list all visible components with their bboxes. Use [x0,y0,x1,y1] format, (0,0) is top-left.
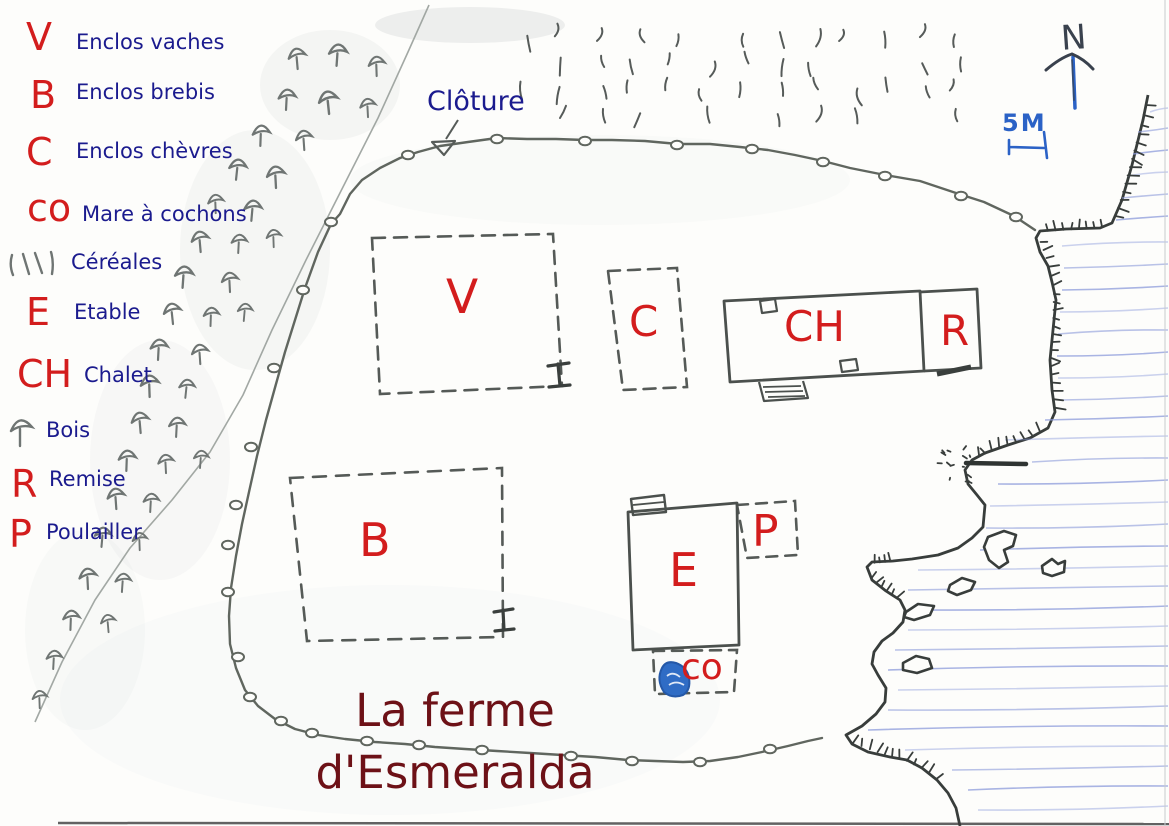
shore-tick [884,555,885,562]
shore-tick [1049,265,1059,267]
map-label-poulailler: P [752,510,779,554]
chalet-window-2 [840,359,858,372]
map-label-remise: R [940,310,969,352]
fence-post [325,218,337,227]
fence-post [230,501,242,510]
fence-post [268,364,280,373]
porch-steps [763,386,805,397]
tree-icon [6,414,46,450]
islet [904,604,934,620]
cereal-stroke [855,108,858,123]
cereal-stroke [668,53,670,64]
cereal-stroke [781,59,783,76]
shore-tick [1139,134,1149,135]
fence-post [222,541,234,550]
cereal-stroke [640,29,645,42]
cereal-stroke [813,78,818,90]
rock-scribble [950,478,951,480]
rocks-islets [903,531,1065,673]
cereal-stroke [739,82,740,97]
map-label-enclos-vaches: V [446,274,478,321]
water-line [916,606,1168,610]
water-line [1058,374,1168,378]
legend-label-bois: Bois [46,419,90,442]
fence-post [764,745,776,754]
north-arrow [1046,54,1093,108]
cereal-stroke [560,106,566,118]
cereal-stroke [630,60,633,75]
cereal-field-hatching [520,24,961,128]
shore-tick [878,743,884,752]
shore-tick [929,764,934,773]
legend-key-etable: E [26,293,50,331]
scale-label: 5M [1002,111,1047,135]
fence-post [694,758,706,767]
shore-tick [1051,358,1060,361]
north-label: N [1060,20,1088,56]
water-line [1032,458,1168,462]
water-line [998,480,1168,484]
cereal-stroke [627,80,628,92]
shore-tick [853,735,858,742]
cereal-stroke [710,62,716,77]
rock-scribble [963,446,966,450]
enclosure-gates [494,363,570,631]
legend-key-enclos-chevres: C [26,133,53,171]
water-line [905,746,1168,750]
shore-tick [862,739,863,746]
shore-tick [978,447,979,456]
cereal-hatching-icon [4,249,62,283]
cereal-stroke [778,114,780,126]
cereal-stroke [676,34,678,46]
water-line [986,524,1168,528]
fence-post [297,286,309,295]
water-line [898,686,1168,690]
shore-tick [1013,436,1015,441]
fence-post [1010,213,1022,222]
shore-tick [907,752,913,760]
fence-post [746,145,758,154]
water-line [1058,330,1168,334]
legend-label-mare-cochons: Mare à cochons [82,203,247,226]
shore-tick [1115,216,1123,218]
legend-key-chalet: CH [17,355,72,393]
rock-scribble [950,465,954,466]
shore-tick [1079,220,1080,229]
water-line [978,806,1168,810]
water-line [908,586,1168,590]
shore-tick [879,557,880,562]
legend-key-poulailler: P [9,515,32,553]
water-line [1064,264,1168,268]
cereal-stroke [885,78,887,92]
chalet-window [760,299,777,313]
legend-key-enclos-vaches: V [26,18,52,56]
legend-key-enclos-brebis: B [30,76,56,114]
fence-post [491,135,503,144]
shore-tick [998,438,999,448]
cereal-stroke [922,63,927,74]
legend-key-remise: R [11,465,37,503]
cereal-stroke [960,57,961,71]
fence-post [671,141,683,150]
islet [903,656,932,673]
water-line [1122,194,1168,198]
cereal-stroke [839,30,844,41]
cereal-stroke [557,87,560,104]
cereal-stroke [699,89,702,101]
shore-tick [1020,432,1024,438]
legend-label-enclos-chevres: Enclos chèvres [76,140,233,163]
cereal-stroke [782,83,783,96]
water-line [968,786,1168,790]
rock-scribble [947,463,950,466]
farm-map-page: V Enclos vaches B Enclos brebis C Enclos… [0,0,1169,826]
map-title: La ferme d'Esmeralda [240,680,670,804]
water-line [888,706,1168,710]
cereal-stroke [603,86,606,99]
cereal-stroke [560,58,561,76]
legend-label-enclos-vaches: Enclos vaches [76,31,224,54]
cereal-stroke [816,29,821,46]
shore-tick [1029,430,1032,435]
legend-label-remise: Remise [49,468,126,491]
shore-tick [1036,423,1040,432]
shore-tick [885,747,888,754]
map-label-mare-cochons: co [681,650,723,686]
fence-post [402,151,414,160]
cereal-stroke [950,79,954,90]
shore-tick [1055,399,1064,400]
shoreline [846,95,1148,826]
water-line [1060,396,1168,400]
cereal-stroke [597,28,602,41]
map-label-enclos-brebis: B [359,517,391,563]
water-line [990,502,1168,506]
shore-tick [1146,105,1156,106]
shore-tick [1051,273,1059,276]
cereal-stroke [816,106,822,122]
legend-label-cereales: Céréales [71,251,162,274]
rock-scribble [947,451,950,452]
legend-key-mare-cochons: co [27,189,71,227]
cereal-stroke [601,56,604,67]
water-line [868,726,1168,730]
cereal-stroke [665,78,667,90]
shore-tick [1051,363,1059,366]
shore-tick [1006,437,1007,445]
legend-label-etable: Etable [74,301,140,324]
cereal-stroke [926,86,930,97]
shore-tick [1052,373,1058,374]
scan-bottom-edge [58,823,1169,824]
shore-tick [1044,246,1053,250]
water-line [1062,286,1168,290]
shore-tick [892,589,894,594]
fence-post [879,172,891,181]
cereal-stroke [780,32,784,48]
map-label-enclos-chevres: C [629,301,658,343]
legend-label-enclos-brebis: Enclos brebis [76,81,215,104]
shore-tick [921,761,927,768]
islet [1042,559,1065,576]
cereal-stroke [955,109,957,121]
shore-tick [877,577,884,582]
cereal-stroke [884,32,885,48]
shore-tick [892,749,893,756]
cereal-stroke [953,34,955,47]
legend-label-chalet: Chalet [84,364,152,387]
shore-tick [1086,222,1087,229]
shore-tick [1093,222,1094,228]
shore-tick [887,584,892,591]
rock-scribble [970,455,971,457]
shore-hatching [853,105,1155,779]
cereal-stroke [634,113,640,127]
fence-post [817,158,829,167]
water-line [1138,128,1168,132]
islet [948,578,975,595]
shore-tick [990,441,992,451]
tree-glyph [163,303,182,325]
dock-pier [966,463,1026,464]
rock-scribble [970,482,972,483]
vaches-gate [548,363,570,387]
fence-post [222,588,234,597]
rock-scribble [968,475,972,478]
shore-tick [1053,281,1061,285]
fence-post [579,137,591,146]
fence-post [955,192,967,201]
shore-tick [936,774,943,779]
fence-post [245,443,257,452]
fence-label: Clôture [427,88,525,115]
shore-tick [1056,408,1066,410]
cereal-stroke [745,52,749,64]
cereal-stroke [857,89,862,106]
shore-tick [882,581,885,587]
map-label-chalet: CH [784,306,845,348]
shore-tick [1128,175,1140,176]
shore-tick [897,592,904,598]
water-line [895,646,1168,650]
cereal-stroke [920,24,926,37]
map-label-etable: E [669,547,698,593]
map-title-line-1: La ferme [240,680,670,742]
water-line [1062,242,1168,246]
cereal-stroke [707,107,709,123]
shore-tick [870,740,873,750]
shore-tick [1053,383,1060,384]
legend-label-poulailler: Poulailler [46,521,142,544]
fence-post [232,653,244,662]
remise-door [937,367,971,374]
shore-tick [1118,208,1129,212]
rock-scribble [963,456,967,459]
etable-annex-line [633,502,664,505]
shore-tick [872,572,877,578]
water-line [908,626,1168,630]
water-line [952,766,1168,770]
shore-tick [1047,256,1054,258]
water-line [1060,308,1168,312]
cereal-stroke [808,63,811,76]
cereal-stroke [603,109,605,123]
water-line [1045,416,1168,420]
cereal-stroke [742,34,744,47]
map-title-line-2: d'Esmeralda [240,742,670,804]
water-line [1057,352,1168,356]
